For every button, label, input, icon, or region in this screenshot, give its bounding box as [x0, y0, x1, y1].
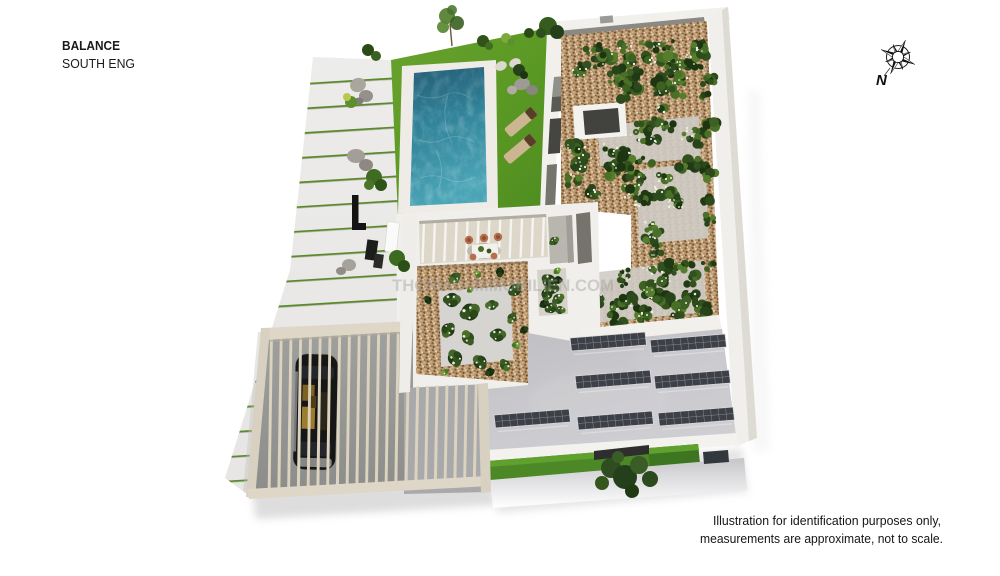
svg-text:Illustration for identificatio: Illustration for identification purposes…: [713, 513, 941, 528]
svg-text:BALANCE: BALANCE: [62, 38, 120, 53]
svg-text:SOUTH ENG: SOUTH ENG: [62, 56, 135, 71]
svg-text:measurements are approximate,: measurements are approximate, not to sca…: [700, 531, 943, 546]
svg-text:THOMAS-IMMOBILIEN.COM: THOMAS-IMMOBILIEN.COM: [392, 277, 614, 295]
svg-text:N: N: [876, 72, 888, 89]
